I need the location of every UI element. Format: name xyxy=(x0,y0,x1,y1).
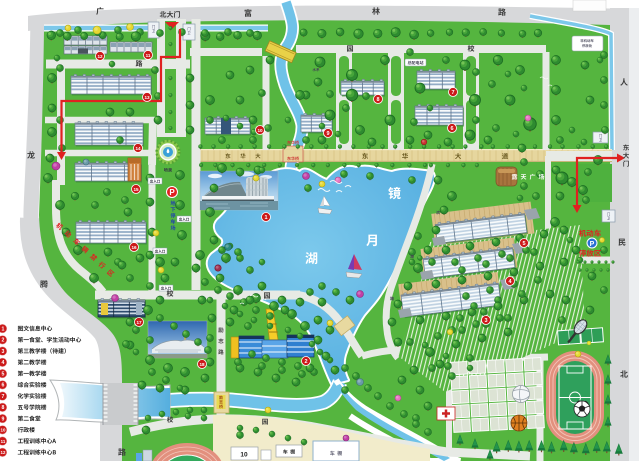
svg-text:10: 10 xyxy=(1,428,6,433)
svg-text:6: 6 xyxy=(450,126,453,132)
svg-text:11: 11 xyxy=(146,53,151,58)
svg-text:9: 9 xyxy=(326,131,329,137)
svg-text:2: 2 xyxy=(304,359,307,365)
svg-text:15: 15 xyxy=(133,187,139,192)
svg-text:10: 10 xyxy=(257,128,263,133)
svg-text:10: 10 xyxy=(240,452,248,459)
svg-text:18: 18 xyxy=(199,362,205,367)
svg-text:1: 1 xyxy=(2,326,5,332)
svg-text:1: 1 xyxy=(264,215,267,221)
svg-text:12: 12 xyxy=(97,54,103,59)
svg-text:12: 12 xyxy=(1,450,6,455)
svg-text:2: 2 xyxy=(2,338,5,344)
svg-text:13: 13 xyxy=(144,95,150,100)
svg-text:P: P xyxy=(590,241,595,248)
svg-text:16: 16 xyxy=(131,245,137,250)
svg-text:3: 3 xyxy=(484,318,487,324)
svg-text:5: 5 xyxy=(522,241,525,247)
svg-text:14: 14 xyxy=(135,146,141,151)
svg-text:6: 6 xyxy=(2,383,5,389)
svg-text:11: 11 xyxy=(1,439,6,444)
svg-text:8: 8 xyxy=(2,405,5,411)
svg-text:4: 4 xyxy=(2,360,5,366)
svg-text:5: 5 xyxy=(2,371,5,377)
svg-text:P: P xyxy=(169,188,175,197)
svg-text:7: 7 xyxy=(451,90,454,96)
svg-text:8: 8 xyxy=(376,97,379,103)
svg-text:3: 3 xyxy=(2,349,5,355)
svg-text:17: 17 xyxy=(136,320,142,325)
svg-text:9: 9 xyxy=(2,416,5,422)
svg-text:7: 7 xyxy=(2,394,5,400)
